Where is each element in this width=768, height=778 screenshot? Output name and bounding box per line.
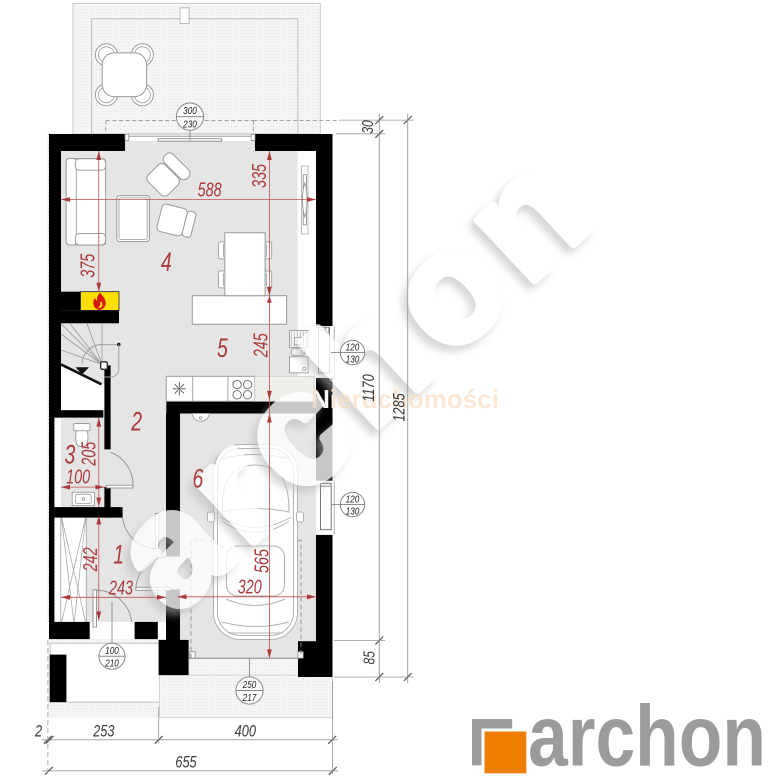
svg-text:100: 100 [66,465,90,488]
svg-text:4: 4 [161,247,172,277]
svg-text:5: 5 [217,333,229,363]
svg-text:230: 230 [182,117,197,129]
svg-text:253: 253 [92,722,115,741]
svg-text:100: 100 [105,644,119,656]
svg-text:655: 655 [175,753,197,772]
svg-text:120: 120 [346,493,360,505]
svg-text:6: 6 [192,463,204,493]
svg-text:2: 2 [130,407,142,437]
svg-text:250: 250 [242,678,257,690]
svg-text:335: 335 [248,164,271,188]
svg-text:588: 588 [198,178,222,201]
svg-text:205: 205 [77,442,100,467]
svg-text:400: 400 [235,722,257,741]
svg-text:375: 375 [76,254,99,278]
svg-text:30: 30 [358,120,376,133]
svg-text:2: 2 [34,722,42,741]
svg-text:85: 85 [360,651,378,664]
svg-text:archon: archon [528,687,766,778]
svg-text:130: 130 [346,352,360,364]
svg-text:1170: 1170 [359,374,378,402]
svg-text:242: 242 [79,547,102,572]
svg-text:210: 210 [104,657,119,669]
svg-text:217: 217 [242,691,257,703]
svg-text:320: 320 [238,575,262,598]
svg-text:243: 243 [108,576,133,599]
svg-text:1: 1 [113,539,124,569]
svg-text:130: 130 [346,504,360,516]
svg-text:245: 245 [249,333,272,358]
svg-text:1285: 1285 [390,393,409,422]
svg-text:300: 300 [183,104,197,116]
svg-text:565: 565 [250,549,273,573]
svg-text:120: 120 [346,341,360,353]
